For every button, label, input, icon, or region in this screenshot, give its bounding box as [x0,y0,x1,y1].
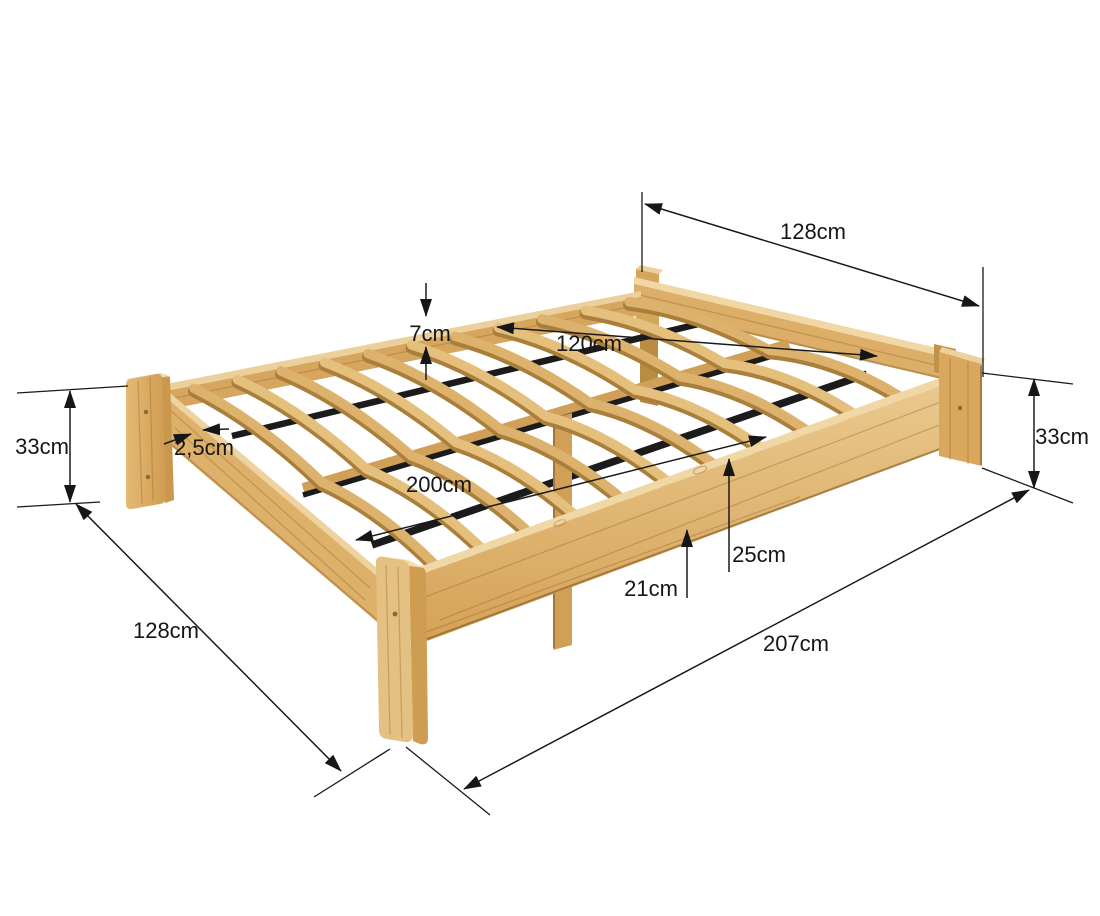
extension-line [17,386,128,393]
clearance-low-label: 21cm [624,576,678,601]
dimension-height-right: 33cm [982,373,1089,503]
dowel-hole [958,406,962,410]
dimension-height-left: 33cm [15,386,128,507]
head-width-label: 128cm [780,219,846,244]
dowel-hole [393,612,398,617]
front-post [376,557,413,742]
extension-line [17,502,100,507]
dowel-hole [146,475,150,479]
height-left-label: 33cm [15,434,69,459]
dimension-arrow [203,429,229,430]
inner-length-label: 200cm [406,472,472,497]
inner-width-label: 120cm [556,331,622,356]
left-post [126,374,166,509]
extension-line [982,468,1073,503]
outer-length-label: 207cm [763,631,829,656]
clearance-high-label: 25cm [732,542,786,567]
foot-rail-bottom-edge [164,438,377,620]
head-rail-face [634,284,950,381]
height-right-label: 33cm [1035,424,1089,449]
dowel-hole [144,410,148,414]
extension-line [982,373,1073,384]
extension-line [406,747,490,815]
bed-diagram-svg: 128cm 7cm 120cm 33cm 2,5cm 200cm [0,0,1100,916]
foot-width-label: 128cm [133,618,199,643]
bed-dimension-diagram: 128cm 7cm 120cm 33cm 2,5cm 200cm [0,0,1100,916]
rail-height-label: 7cm [409,321,451,346]
slat-thickness-label: 2,5cm [174,435,234,460]
